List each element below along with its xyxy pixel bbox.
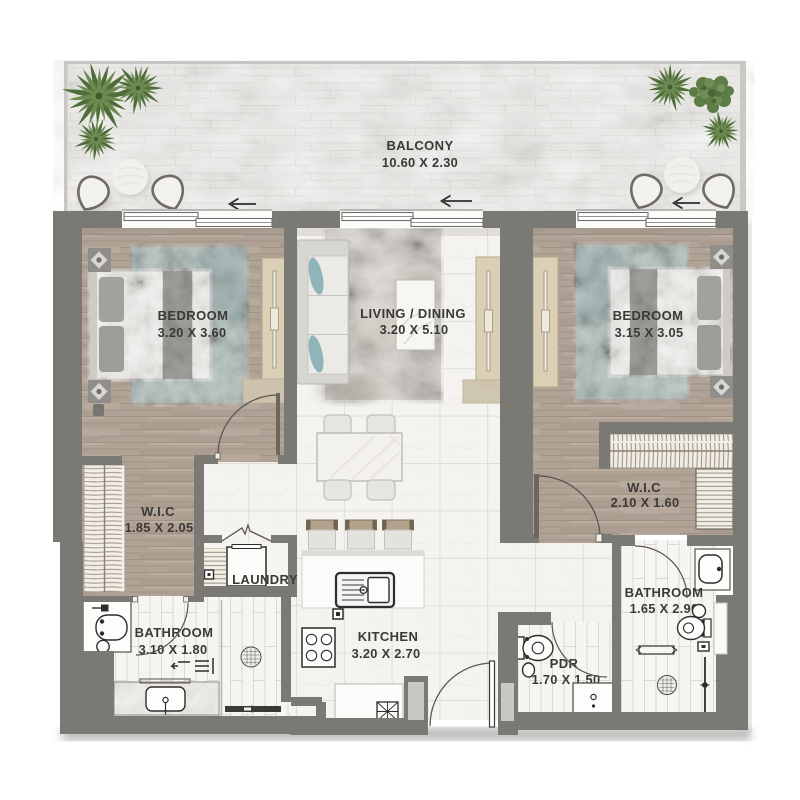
svg-text:3.20 X 3.60: 3.20 X 3.60 [158, 325, 227, 340]
svg-text:LAUNDRY: LAUNDRY [232, 572, 298, 587]
svg-text:BATHROOM: BATHROOM [625, 585, 704, 600]
svg-text:3.20 X 2.70: 3.20 X 2.70 [352, 646, 421, 661]
svg-text:1.85 X 2.05: 1.85 X 2.05 [125, 520, 194, 535]
svg-text:3.10 X 1.80: 3.10 X 1.80 [139, 642, 208, 657]
svg-text:3.20 X 5.10: 3.20 X 5.10 [380, 322, 449, 337]
svg-text:PDR: PDR [550, 656, 579, 671]
svg-text:BEDROOM: BEDROOM [613, 308, 684, 323]
svg-text:1.65 X 2.90: 1.65 X 2.90 [630, 601, 699, 616]
svg-text:2.10 X 1.60: 2.10 X 1.60 [611, 495, 680, 510]
svg-text:W.I.C: W.I.C [627, 480, 661, 495]
svg-text:BEDROOM: BEDROOM [158, 308, 229, 323]
svg-text:KITCHEN: KITCHEN [358, 629, 419, 644]
svg-text:LIVING / DINING: LIVING / DINING [360, 306, 466, 321]
svg-text:10.60 X 2.30: 10.60 X 2.30 [382, 155, 458, 170]
svg-text:3.15 X 3.05: 3.15 X 3.05 [615, 325, 684, 340]
svg-text:BALCONY: BALCONY [386, 138, 453, 153]
svg-text:W.I.C: W.I.C [141, 504, 175, 519]
